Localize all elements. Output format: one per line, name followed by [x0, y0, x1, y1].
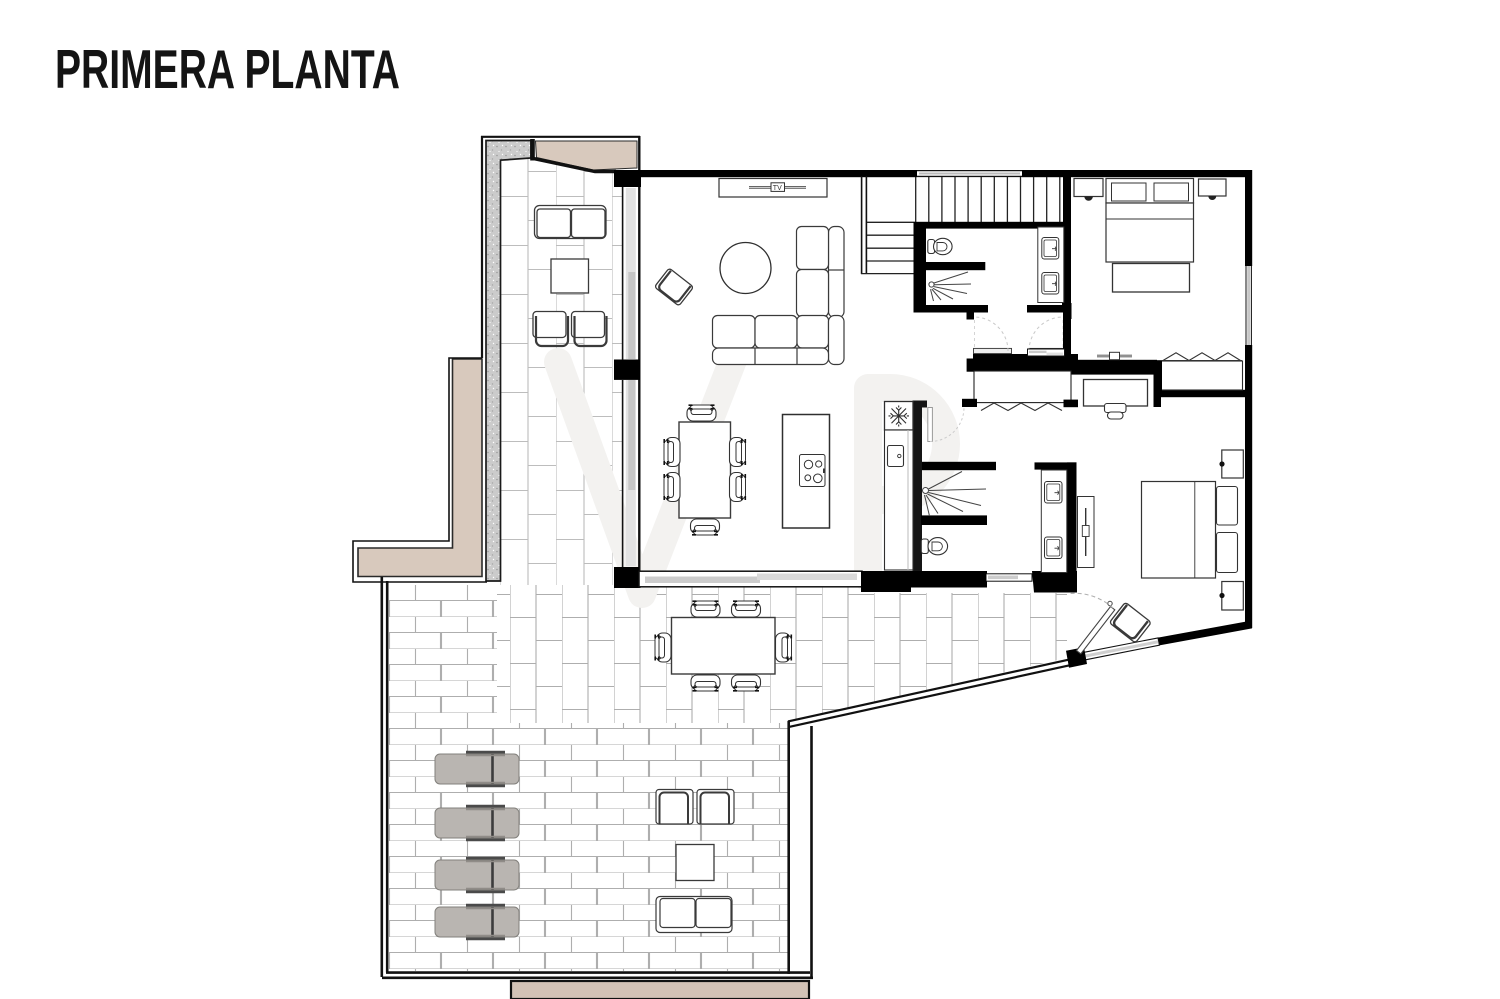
svg-text:TV: TV — [773, 185, 782, 192]
svg-text:PRIMERA PLANTA: PRIMERA PLANTA — [55, 38, 400, 100]
